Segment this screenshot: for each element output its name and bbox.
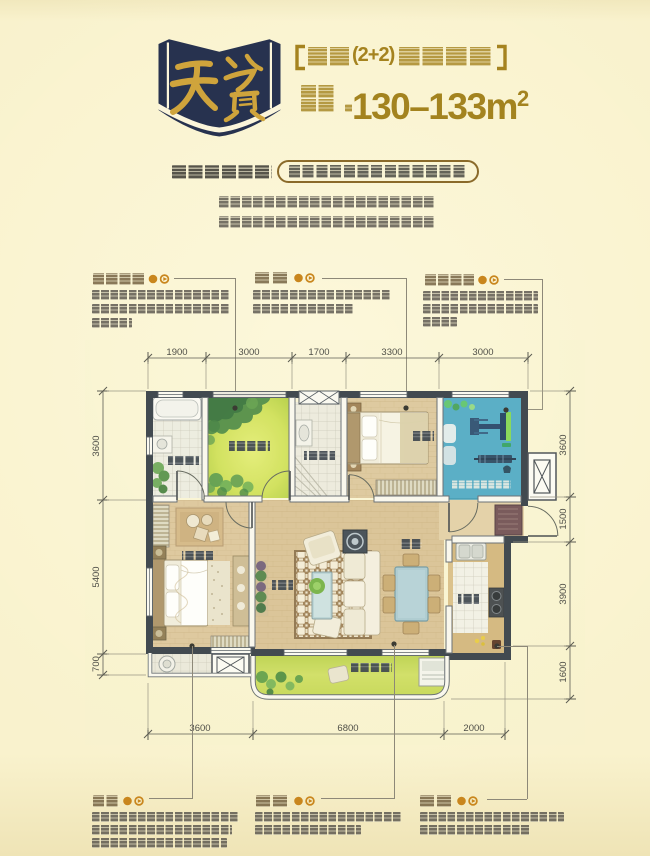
svg-text:2000: 2000 <box>463 723 484 734</box>
svg-text:700: 700 <box>91 656 102 672</box>
svg-text:1900: 1900 <box>166 347 187 358</box>
svg-text:3900: 3900 <box>558 583 569 604</box>
svg-text:1700: 1700 <box>308 347 329 358</box>
svg-text:1500: 1500 <box>558 508 569 529</box>
svg-text:3300: 3300 <box>381 347 402 358</box>
svg-text:5400: 5400 <box>91 566 102 587</box>
svg-text:3600: 3600 <box>91 435 102 456</box>
svg-text:1600: 1600 <box>558 661 569 682</box>
svg-text:3000: 3000 <box>238 347 259 358</box>
svg-text:3600: 3600 <box>558 434 569 455</box>
svg-text:6800: 6800 <box>337 723 358 734</box>
svg-text:3000: 3000 <box>472 347 493 358</box>
